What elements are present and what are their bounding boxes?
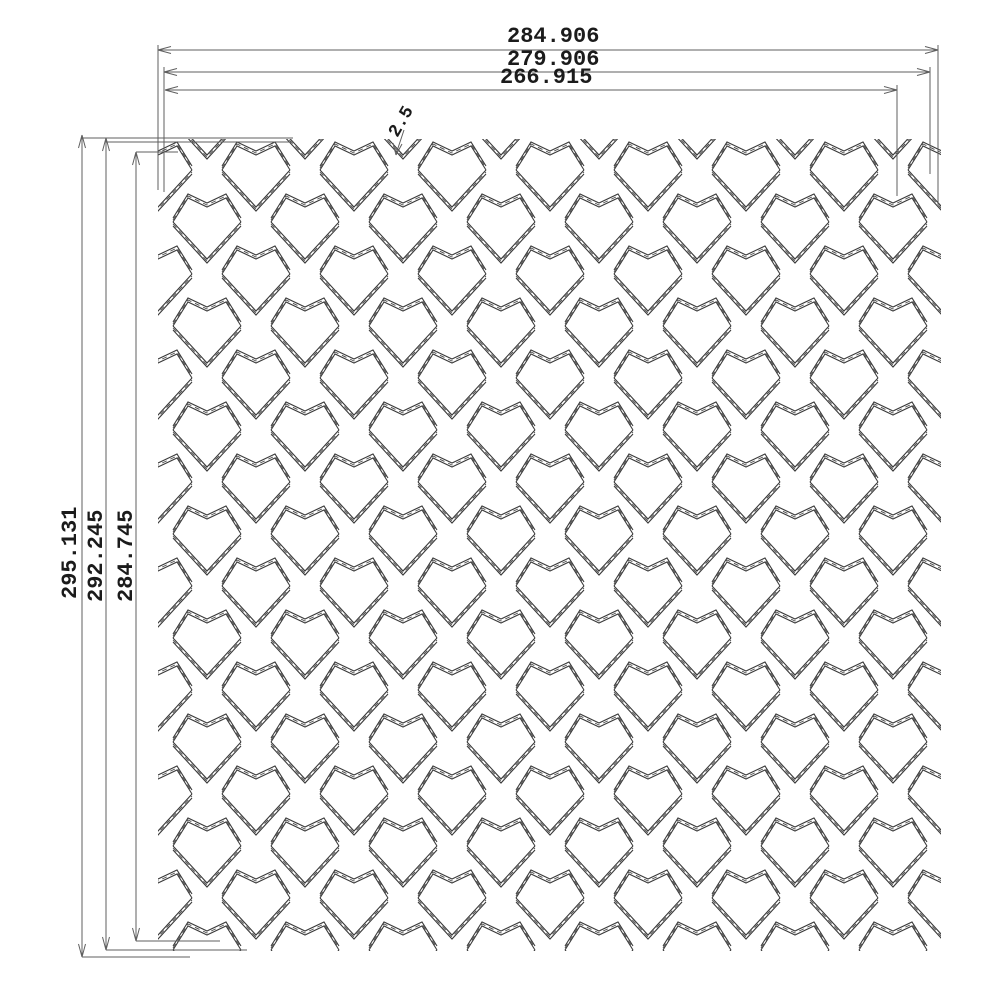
dim-label-left-middle: 292.245 <box>86 510 108 602</box>
cad-drawing-canvas: 284.906 279.906 266.915 295.131 292.245 … <box>0 0 1000 1000</box>
dim-label-top-inner: 266.915 <box>500 67 592 89</box>
dim-label-left-outer: 295.131 <box>60 507 82 599</box>
dim-label-top-outer: 284.906 <box>507 26 599 48</box>
extension-lines <box>82 45 938 957</box>
dim-label-left-inner: 284.745 <box>116 510 138 602</box>
dimension-lines <box>0 0 1000 1000</box>
